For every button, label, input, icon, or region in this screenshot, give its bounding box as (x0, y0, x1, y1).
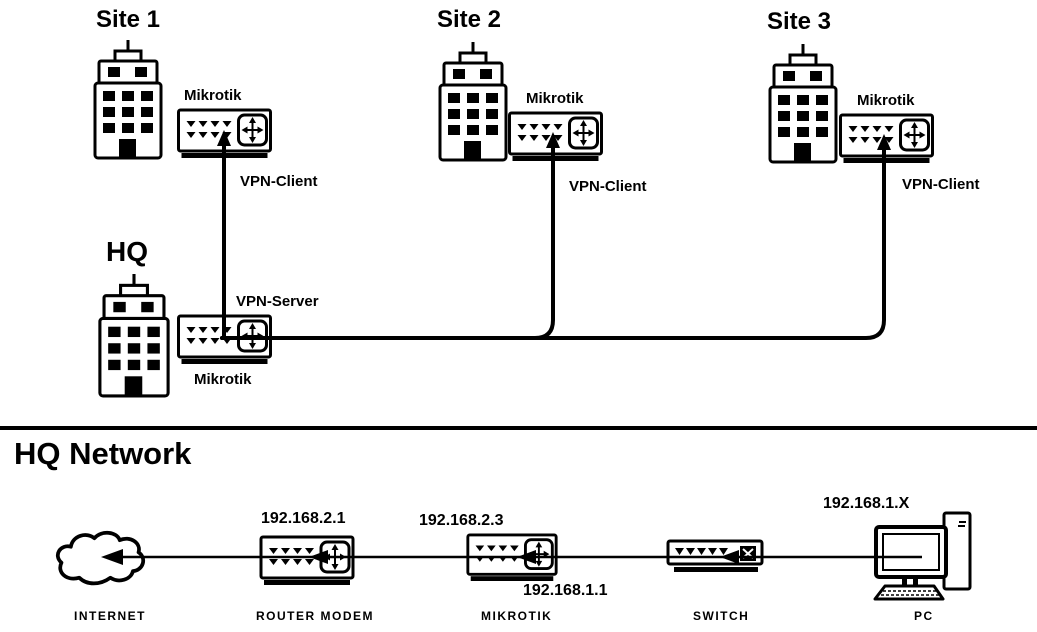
section-divider (0, 426, 1037, 430)
site1-building-icon (95, 40, 161, 158)
site2-router-label: Mikrotik (526, 91, 584, 106)
site3-role-label: VPN-Client (902, 177, 980, 192)
switch-label: SWITCH (693, 610, 749, 622)
hq-role-label: VPN-Server (236, 294, 319, 309)
site3-router-label: Mikrotik (857, 93, 915, 108)
site2-building-icon (440, 42, 506, 160)
router-modem-label: ROUTER MODEM (256, 610, 374, 622)
site2-role-label: VPN-Client (569, 179, 647, 194)
vpn-network-diagram: Site 1 Site 2 Site 3 Mikrotik Mikrotik M… (0, 0, 1037, 632)
site2-title: Site 2 (437, 8, 501, 32)
site2-router-icon (510, 113, 602, 161)
internet-label: INTERNET (74, 610, 146, 622)
site1-router-label: Mikrotik (184, 88, 242, 103)
hq-network-section-title: HQ Network (14, 438, 191, 469)
site1-title: Site 1 (96, 8, 160, 32)
site3-building-icon (770, 44, 836, 162)
pc-label: PC (914, 610, 934, 622)
mikrotik-label: MIKROTIK (481, 610, 552, 622)
hq-building-icon (100, 274, 168, 396)
site3-title: Site 3 (767, 10, 831, 34)
mikrotik-wan-ip: 192.168.2.3 (419, 513, 504, 529)
vpn-connection-lines (222, 142, 884, 338)
router-modem-icon (261, 537, 353, 585)
site3-router-icon (841, 115, 933, 163)
site1-role-label: VPN-Client (240, 174, 318, 189)
pc-ip: 192.168.1.X (823, 496, 909, 512)
hq-router-label: Mikrotik (194, 372, 252, 387)
mikrotik-lan-ip: 192.168.1.1 (523, 583, 608, 599)
router-modem-ip: 192.168.2.1 (261, 511, 346, 527)
hq-title: HQ (106, 238, 148, 266)
